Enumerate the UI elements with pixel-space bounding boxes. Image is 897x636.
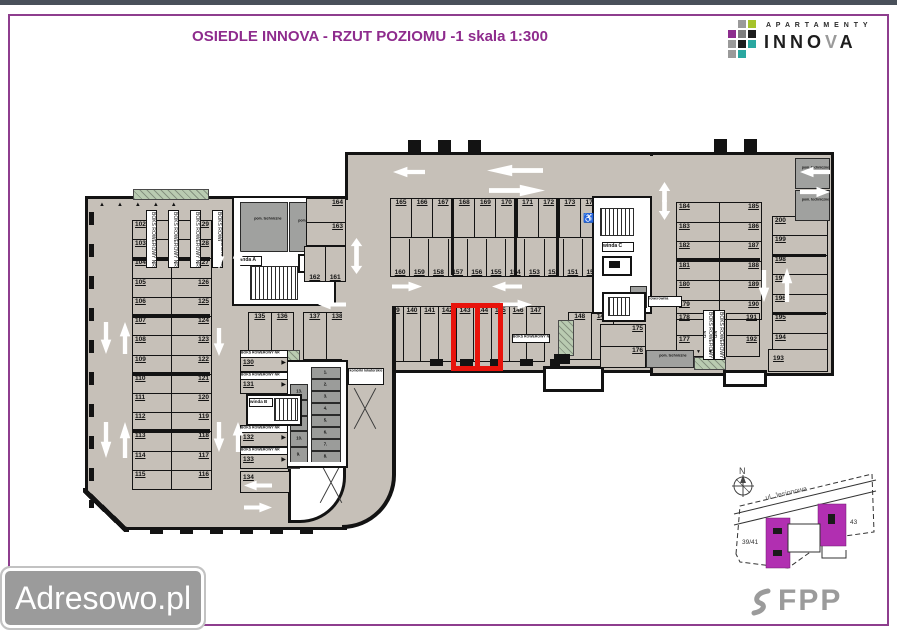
mosaic-sq — [748, 30, 756, 38]
stall-number: 117 — [199, 452, 210, 459]
stall-number: 176 — [632, 347, 643, 354]
parking-stall: 113 — [133, 432, 171, 451]
fpp-swirl-icon — [746, 585, 778, 617]
stall-number: 141 — [424, 307, 435, 314]
parking-stall: 108 — [133, 336, 171, 355]
bike-box: 131 ▶ — [240, 379, 288, 394]
parking-block-161: 162161 — [304, 246, 346, 282]
room-label: pom. techniczne — [650, 354, 696, 358]
stall-number: 148 — [574, 313, 585, 320]
building-39-41 — [766, 518, 790, 568]
bike-box: 130 ▶ — [240, 357, 288, 372]
stall-number: 166 — [417, 199, 428, 206]
stall-number: 140 — [407, 307, 418, 314]
site-minimap: N ul. Jesionowa 39/41 43 — [726, 462, 880, 586]
storage-number: 5. — [324, 419, 328, 423]
stall-number: 195 — [775, 314, 786, 321]
door-zone-green — [558, 320, 574, 356]
parking-stall: 114 — [133, 452, 171, 471]
parking-block-right: 184183182181180179 185186187188189190 — [676, 202, 762, 320]
elevator-c-label: winda C — [602, 242, 634, 252]
group-wall — [514, 198, 517, 275]
stall-number: 107 — [135, 317, 146, 324]
stall-number: 116 — [199, 471, 210, 478]
building-outline — [788, 524, 820, 552]
stall-number: 168 — [459, 199, 470, 206]
stall-number: 187 — [748, 242, 759, 249]
storage-number: 4. — [324, 407, 328, 411]
stall-number: 135 — [254, 313, 265, 320]
parking-stall: 176 — [601, 347, 645, 368]
stall-number: 190 — [748, 301, 759, 308]
stall-number: 184 — [679, 203, 690, 210]
wheel-stop-bar — [772, 254, 826, 257]
adresowo-watermark: Adresowo.pl — [0, 566, 206, 630]
stall-number: 171 — [522, 199, 533, 206]
logo-mosaic-icon — [728, 18, 760, 62]
storage-number: 7. — [324, 443, 328, 447]
stall-number: 151 — [567, 269, 578, 276]
parking-stall: 160 — [391, 239, 409, 276]
stall-number: 119 — [199, 413, 210, 420]
parking-stall: 110 — [133, 375, 171, 394]
parking-row: 160159158157156155154153152151150 — [391, 239, 601, 276]
storage-column: 1.2.3.4.5.6.7.8. — [311, 367, 341, 462]
stall-number: 194 — [775, 334, 786, 341]
parking-stall: 195 — [773, 314, 827, 333]
stall-number: 161 — [330, 274, 341, 281]
storage-cell: 2. — [311, 379, 341, 391]
stall-number: 126 — [198, 279, 209, 286]
stall-number: 162 — [309, 274, 320, 281]
stall-number: 175 — [632, 325, 643, 332]
rowerownia-label: rowerownia — [648, 296, 682, 307]
bike-box: 132 ▶ — [240, 432, 288, 447]
room-pom-techniczne: pom. techniczne — [646, 350, 694, 368]
stall-number: 170 — [501, 199, 512, 206]
bike-box-label: BOKS ROWEROWY NR — [190, 210, 201, 268]
parking-stall: 173 — [559, 199, 580, 237]
parking-stall: 192 — [727, 336, 759, 357]
top-bar — [0, 0, 897, 5]
bike-box-label-text: BOKS ROWEROWY NR — [513, 335, 549, 339]
stall-number: 191 — [746, 314, 757, 321]
stall-number: 172 — [543, 199, 554, 206]
storage-number: 9. — [297, 453, 301, 457]
stall-number: 134 — [243, 474, 254, 481]
mosaic-sq — [748, 20, 756, 28]
stall-number: 169 — [480, 199, 491, 206]
room-label: pom. techniczne — [799, 198, 832, 202]
parking-stall-134: 134 — [240, 471, 290, 493]
stall-number: 103 — [135, 240, 146, 247]
bike-box-label: BOKS ROWEROWY NR — [168, 210, 179, 268]
mosaic-sq — [728, 40, 736, 48]
top-wall-columns — [714, 139, 764, 153]
innova-logo: A P A R T A M E N T Y INNOVA — [726, 16, 884, 66]
stall-number: 165 — [396, 199, 407, 206]
elevator-shaft — [602, 256, 632, 276]
stall-number: 160 — [395, 269, 406, 276]
stall-number: 109 — [135, 356, 146, 363]
door-triangles: ▲▲▲▲▲ — [99, 202, 189, 208]
stall-number: 118 — [199, 432, 210, 439]
parking-stall: 168 — [453, 199, 474, 237]
bike-box-label-text: BOKS ROWEROWY NR — [241, 448, 287, 452]
bike-box: 133 ▶ — [240, 454, 288, 469]
parking-stall: 188 — [720, 262, 761, 282]
wall-stub — [543, 366, 604, 392]
stall-number: 178 — [679, 314, 690, 321]
parking-stall: 156 — [467, 239, 486, 276]
stall-number: 193 — [773, 355, 784, 362]
north-label: N — [739, 466, 746, 476]
stall-number: 130 — [243, 359, 254, 366]
mosaic-sq — [738, 40, 746, 48]
wheel-stop-bar — [676, 258, 760, 261]
group-wall — [451, 198, 454, 275]
parking-stall: 185 — [720, 203, 761, 223]
storage-cell: 6. — [311, 427, 341, 439]
bottom-wall-columns — [150, 527, 320, 534]
parking-column: 164163 — [307, 199, 345, 245]
parking-column: 185186187188189190 — [720, 203, 761, 319]
door-triangle: ▶ — [281, 360, 286, 366]
storage-label-text: komórki lokatorskie — [349, 369, 383, 373]
wheelchair-icon: ♿ — [583, 213, 594, 224]
storage-number: 6. — [324, 431, 328, 435]
page-title: OSIEDLE INNOVA - RZUT POZIOMU -1 skala 1… — [120, 28, 620, 45]
fpp-logo-text: FPP — [778, 584, 842, 618]
mosaic-sq — [728, 50, 736, 58]
logo-innova-dark2: A — [840, 32, 857, 52]
parking-stall: 120 — [172, 394, 211, 413]
elevator-car — [609, 261, 620, 268]
stall-number: 188 — [748, 262, 759, 269]
parking-stall: 141 — [420, 307, 438, 361]
stall-number: 199 — [775, 236, 786, 243]
stairs — [274, 398, 298, 421]
bike-box-label: BOKS ROWEROWY NR — [512, 334, 550, 343]
stall-number: 189 — [748, 281, 759, 288]
room-label: pom. techniczne — [799, 166, 832, 170]
fpp-logo: FPP — [746, 584, 842, 618]
stall-number: 153 — [529, 269, 540, 276]
stall-number: 155 — [491, 269, 502, 276]
logo-innova: INNOVA — [764, 32, 857, 53]
storage-number: 1. — [324, 371, 328, 375]
stall-number: 182 — [679, 242, 690, 249]
wheel-stop-bar — [772, 312, 826, 315]
stall-number: 102 — [135, 221, 146, 228]
mosaic-sq — [738, 30, 746, 38]
parcel-left-label: 39/41 — [742, 539, 759, 546]
stall-number: 114 — [135, 452, 146, 459]
parking-stall: 183 — [677, 223, 719, 243]
parking-stall: 137 — [304, 313, 326, 359]
storage-cell: 3. — [311, 391, 341, 403]
wheel-stop-bar — [132, 429, 210, 433]
bike-box-label: BOKS ROWEROWY NR — [146, 210, 157, 268]
parking-stall: 158 — [428, 239, 447, 276]
stall-number: 111 — [135, 394, 145, 401]
street-label: ul. Jesionowa — [765, 486, 808, 502]
core-b: winda B — [246, 394, 302, 426]
stall-number: 186 — [748, 223, 759, 230]
parking-stall: 116 — [172, 471, 211, 489]
stall-number: 131 — [243, 381, 254, 388]
parking-block-191: 191192 — [726, 313, 760, 357]
parking-row: 165166167168169170171172173174 — [391, 199, 601, 238]
building-43 — [818, 504, 846, 546]
mosaic-sq — [738, 20, 746, 28]
stall-number: 122 — [198, 356, 209, 363]
stall-number: 133 — [243, 456, 254, 463]
parking-stall-193: 193 — [768, 349, 828, 372]
parking-stall: 124 — [172, 317, 211, 336]
bike-box-label-text: BOKS ROWEROWY NR — [241, 426, 287, 430]
storage-cell: 1. — [311, 367, 341, 379]
stall-number: 200 — [775, 217, 786, 224]
stall-number: 108 — [135, 336, 146, 343]
stall-number: 173 — [564, 199, 575, 206]
stall-number: 105 — [135, 279, 146, 286]
parking-stall: 197 — [773, 275, 827, 294]
stall-number: 147 — [530, 307, 541, 314]
stall-number: 180 — [679, 281, 690, 288]
storage-cell: 10. — [290, 431, 308, 447]
storage-cell: 5. — [311, 415, 341, 427]
room-label: pom. techniczne — [245, 217, 291, 221]
stall-number: 136 — [277, 313, 288, 320]
stall-number: 183 — [679, 223, 690, 230]
parking-stall: 105 — [133, 279, 171, 298]
parking-stall: 107 — [133, 317, 171, 336]
storage-cell: 4. — [311, 403, 341, 415]
parcel-right-label: 43 — [850, 519, 858, 526]
rowerownia-label-text: rowerownia — [649, 297, 681, 301]
parking-stall: 164 — [307, 199, 345, 223]
parking-stall: 171 — [517, 199, 538, 237]
stall-number: 123 — [198, 336, 209, 343]
parking-stall: 123 — [172, 336, 211, 355]
stall-number: 125 — [198, 298, 209, 305]
stairs — [608, 297, 630, 316]
stairs — [250, 266, 298, 300]
top-wall-columns — [408, 140, 494, 153]
stall-number: 115 — [135, 471, 146, 478]
parking-stall: 186 — [720, 223, 761, 243]
parking-stall: 111 — [133, 394, 171, 413]
parking-stall: 121 — [172, 375, 211, 394]
wheel-stop-bar — [132, 314, 210, 318]
parking-stall: 152 — [544, 239, 563, 276]
stall-number: 158 — [433, 269, 444, 276]
room-pom-techniczne: pom. techniczne — [795, 190, 830, 221]
stall-number: 167 — [438, 199, 449, 206]
parking-stall: 198 — [773, 256, 827, 275]
stall-number: 159 — [414, 269, 425, 276]
stall-number: 163 — [332, 223, 343, 230]
adresowo-watermark-text: Adresowo.pl — [15, 580, 191, 617]
stall-number: 137 — [309, 313, 320, 320]
wall-opening — [762, 156, 771, 364]
elevator-b-label: winda B — [249, 398, 273, 407]
parking-stall: 181 — [677, 262, 719, 282]
stall-number: 164 — [332, 199, 343, 206]
parking-stall: 184 — [677, 203, 719, 223]
logo-innova-gray: V — [825, 32, 840, 52]
storage-number: 2. — [324, 383, 328, 387]
stall-number: 185 — [748, 203, 759, 210]
stall-number: 120 — [198, 394, 209, 401]
parking-stall: 180 — [677, 281, 719, 301]
mosaic-sq — [748, 40, 756, 48]
parking-stall: 175 — [601, 325, 645, 347]
storage-cell: 7. — [311, 439, 341, 451]
stall-number: 132 — [243, 434, 254, 441]
bike-entry-green — [133, 189, 209, 200]
door-triangle: ▶ — [281, 435, 286, 441]
storage-number: 10. — [296, 437, 302, 441]
parking-block-far-right: 200199198197196195194 — [772, 216, 828, 353]
mosaic-sq — [738, 50, 746, 58]
parking-stall: 115 — [133, 471, 171, 489]
stall-number: 113 — [135, 432, 146, 439]
storage-cell: 9. — [290, 447, 308, 462]
stairs — [600, 208, 634, 236]
parking-stall: 165 — [391, 199, 411, 237]
wall-piece — [554, 354, 570, 364]
storage-label: komórki lokatorskie — [348, 368, 384, 385]
stall-number: 196 — [775, 295, 786, 302]
parking-block-163: 164163 — [306, 198, 346, 246]
small-stairs — [602, 292, 646, 322]
parking-block-175: 175176 — [600, 324, 646, 368]
stall-number: 192 — [746, 336, 757, 343]
parking-stall: 161 — [325, 247, 346, 281]
stall-number: 181 — [679, 262, 690, 269]
parking-stall: 199 — [773, 236, 827, 255]
parking-stall: 153 — [524, 239, 543, 276]
parking-stall: 151 — [563, 239, 582, 276]
stall-number: 106 — [135, 298, 146, 305]
parking-stall: 118 — [172, 432, 211, 451]
parking-stall: 191 — [727, 314, 759, 336]
group-wall — [556, 198, 559, 275]
parking-stall: 166 — [411, 199, 432, 237]
left-wall-columns — [89, 212, 94, 508]
parking-stall: 126 — [172, 279, 211, 298]
parking-stall: 189 — [720, 281, 761, 301]
storage-number: 3. — [324, 395, 328, 399]
door-triangles: ▼▼ — [696, 350, 720, 355]
wheel-stop-bar — [132, 372, 210, 376]
logo-apartamenty: A P A R T A M E N T Y — [766, 22, 869, 29]
bike-box-label-text: BOKS ROWEROWY NR — [241, 373, 287, 377]
parking-stall: 155 — [486, 239, 505, 276]
highlight-divider — [475, 308, 480, 366]
highlighted-stalls-143-144 — [451, 303, 503, 371]
stall-number: 124 — [198, 317, 209, 324]
bike-box-label-text: BOKS ROWEROWY NR — [241, 351, 287, 355]
storage-number: 8. — [324, 455, 328, 459]
parking-column: 184183182181180179 — [677, 203, 720, 319]
parking-stall: 159 — [409, 239, 428, 276]
stall-number: 177 — [679, 336, 690, 343]
mosaic-sq — [728, 30, 736, 38]
parking-stall: 140 — [403, 307, 421, 361]
parking-stall: 163 — [307, 223, 345, 246]
parking-block-top: 165166167168169170171172173174 160159158… — [390, 198, 602, 277]
door-triangle: ▶ — [281, 457, 286, 463]
logo-innova-dark: INNO — [764, 32, 825, 52]
storage-cell: 8. — [311, 451, 341, 462]
parking-stall: 169 — [474, 199, 495, 237]
parking-column: 175176 — [601, 325, 645, 367]
room-pom-techniczne: pom. techniczne — [240, 202, 288, 252]
parking-stall: 117 — [172, 452, 211, 471]
parking-stall: 162 — [305, 247, 325, 281]
stall-number: 112 — [135, 413, 146, 420]
stall-number: 156 — [471, 269, 482, 276]
wall-stub — [723, 370, 767, 387]
door-triangle: ▶ — [281, 382, 286, 388]
